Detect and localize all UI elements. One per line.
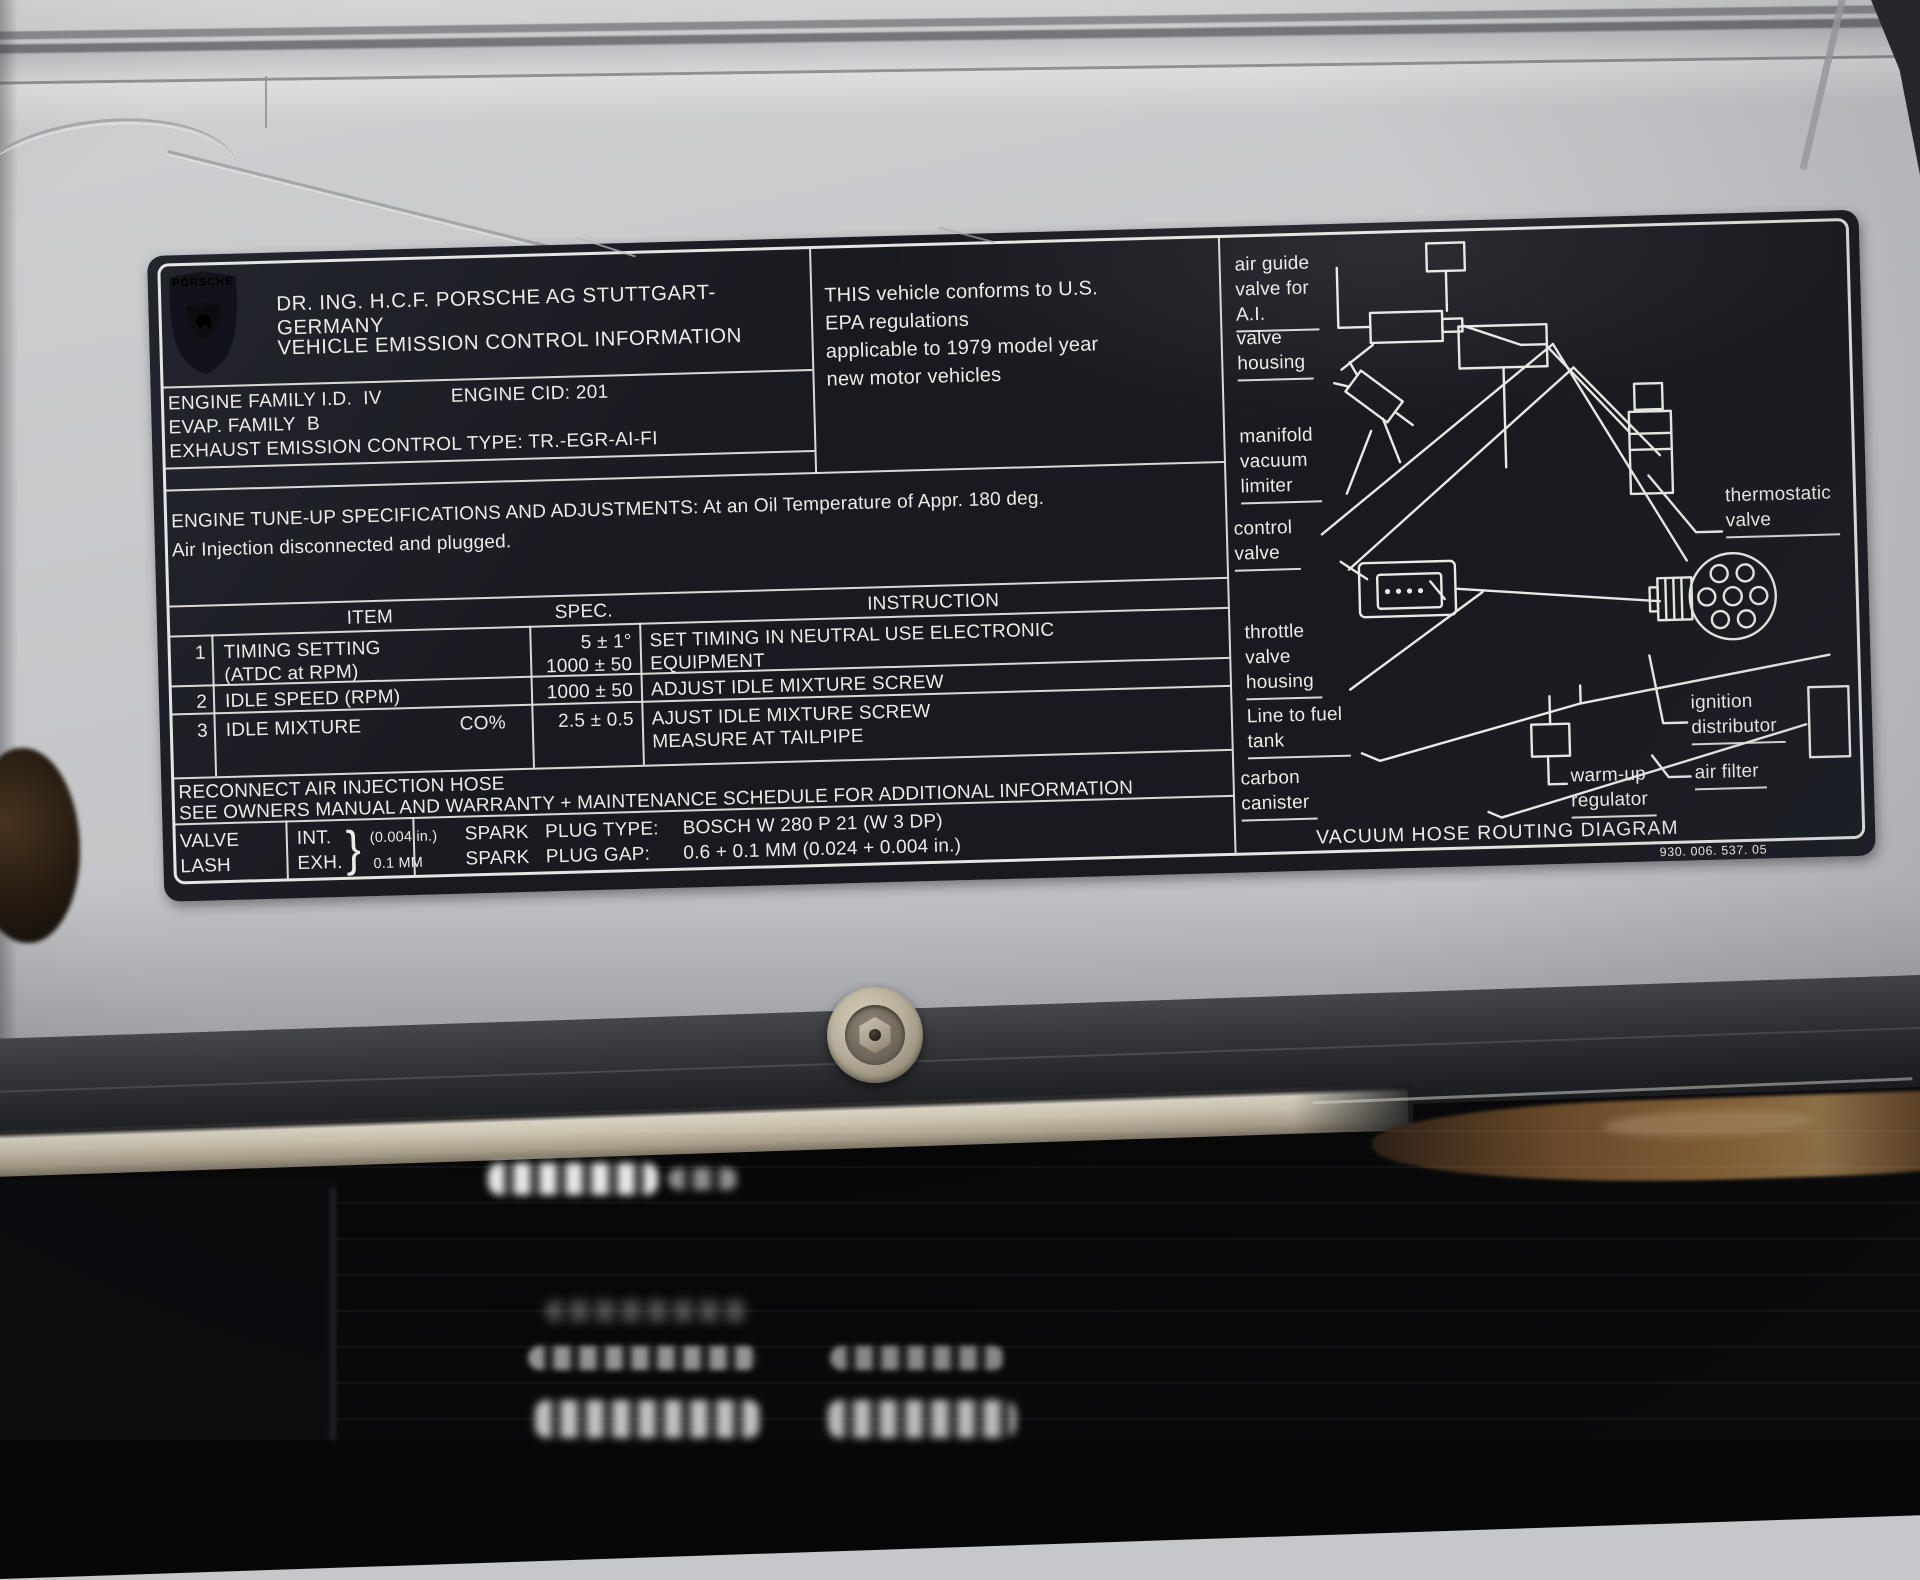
fastener-center-hole: [869, 1029, 881, 1041]
row-number: 3: [174, 720, 209, 744]
scratch-mark: [265, 76, 267, 128]
diagram-label-ignition-distributor: ignition distributor: [1690, 688, 1785, 746]
spec-item: TIMING SETTING (ATDC at RPM): [223, 637, 381, 687]
photo-engine-lid-scene: { "colors": { "label_background": "#1b1d…: [0, 0, 1920, 1440]
spec-item: IDLE SPEED (RPM): [225, 685, 401, 713]
diagram-label-warm-up-regulator: warm-up regulator: [1570, 761, 1656, 818]
diagram-label-valve-housing: valve housing: [1236, 325, 1313, 382]
diagram-label-manifold-vacuum-limiter: manifold vacuum limiter: [1239, 422, 1323, 504]
part-number: 930. 006. 537. 05: [1659, 842, 1767, 860]
valve-int-label: INT.: [297, 827, 332, 850]
diagram-label-carbon-canister: carbon canister: [1240, 765, 1318, 822]
fastener-screw: [827, 987, 923, 1083]
valve-exh-label: EXH.: [297, 852, 343, 876]
reflection-glint: [488, 1163, 658, 1195]
column-header-spec: SPEC.: [528, 599, 639, 625]
diagram-label-air-guide-valve: air guide valve for A.I.: [1234, 250, 1319, 332]
diagram-label-control-valve: control valve: [1233, 515, 1301, 572]
spec-value: 1000 ± 50: [531, 679, 634, 705]
emission-control-label: PORSCHE STUTTGART DR. ING. H.C.F. PORSCH…: [147, 210, 1876, 902]
spec-item: IDLE MIXTURE: [226, 715, 362, 742]
evap-family: EVAP. FAMILY B: [168, 413, 320, 439]
svg-text:PORSCHE: PORSCHE: [172, 276, 234, 290]
reflection-glint: [528, 1346, 758, 1370]
reflection-glint: [545, 1300, 750, 1322]
engine-cid: ENGINE CID: 201: [451, 382, 609, 409]
reflection-glint: [828, 1400, 1016, 1438]
engine-bay-component-edge: [330, 1188, 336, 1440]
fastener-recess: [845, 1005, 905, 1065]
vacuum-diagram-section: air guide valve for A.I. valve housing m…: [1218, 218, 1866, 856]
diagram-label-line-to-fuel-tank: Line to fuel tank: [1247, 702, 1352, 760]
valve-lash-word2: LASH: [180, 855, 231, 879]
engine-bay-component: [0, 1180, 336, 1440]
reflection-glint: [535, 1400, 760, 1438]
spec-item-unit: CO%: [459, 711, 506, 735]
spec-instruction: AJUST IDLE MIXTURE SCREW MEASURE AT TAIL…: [651, 700, 931, 754]
reflection-glint: [830, 1346, 1005, 1370]
fastener-hex-head: [857, 1017, 893, 1053]
diagram-label-throttle-valve-housing: throttle valve housing: [1244, 618, 1322, 700]
porsche-crest-logo: PORSCHE STUTTGART: [163, 267, 244, 379]
svg-text:STUTTGART: STUTTGART: [188, 307, 219, 313]
spec-value: 2.5 ± 0.5: [531, 708, 634, 734]
reflection-glint: [668, 1168, 738, 1190]
spec-value: 5 ± 1° 1000 ± 50: [529, 630, 632, 679]
valve-exh-value: 0.1 MM: [373, 855, 423, 873]
row-number: 1: [171, 642, 206, 666]
diagram-label-air-filter: air filter: [1694, 758, 1767, 790]
row-number: 2: [173, 691, 208, 715]
valve-brace: }: [345, 821, 361, 877]
valve-int-value: (0.004 in.): [370, 828, 438, 847]
epa-conformity-statement: THIS vehicle conforms to U.S. EPA regula…: [824, 271, 1211, 393]
diagram-label-thermostatic-valve: thermostatic valve: [1725, 480, 1840, 538]
valve-lash-word1: VALVE: [180, 830, 240, 854]
